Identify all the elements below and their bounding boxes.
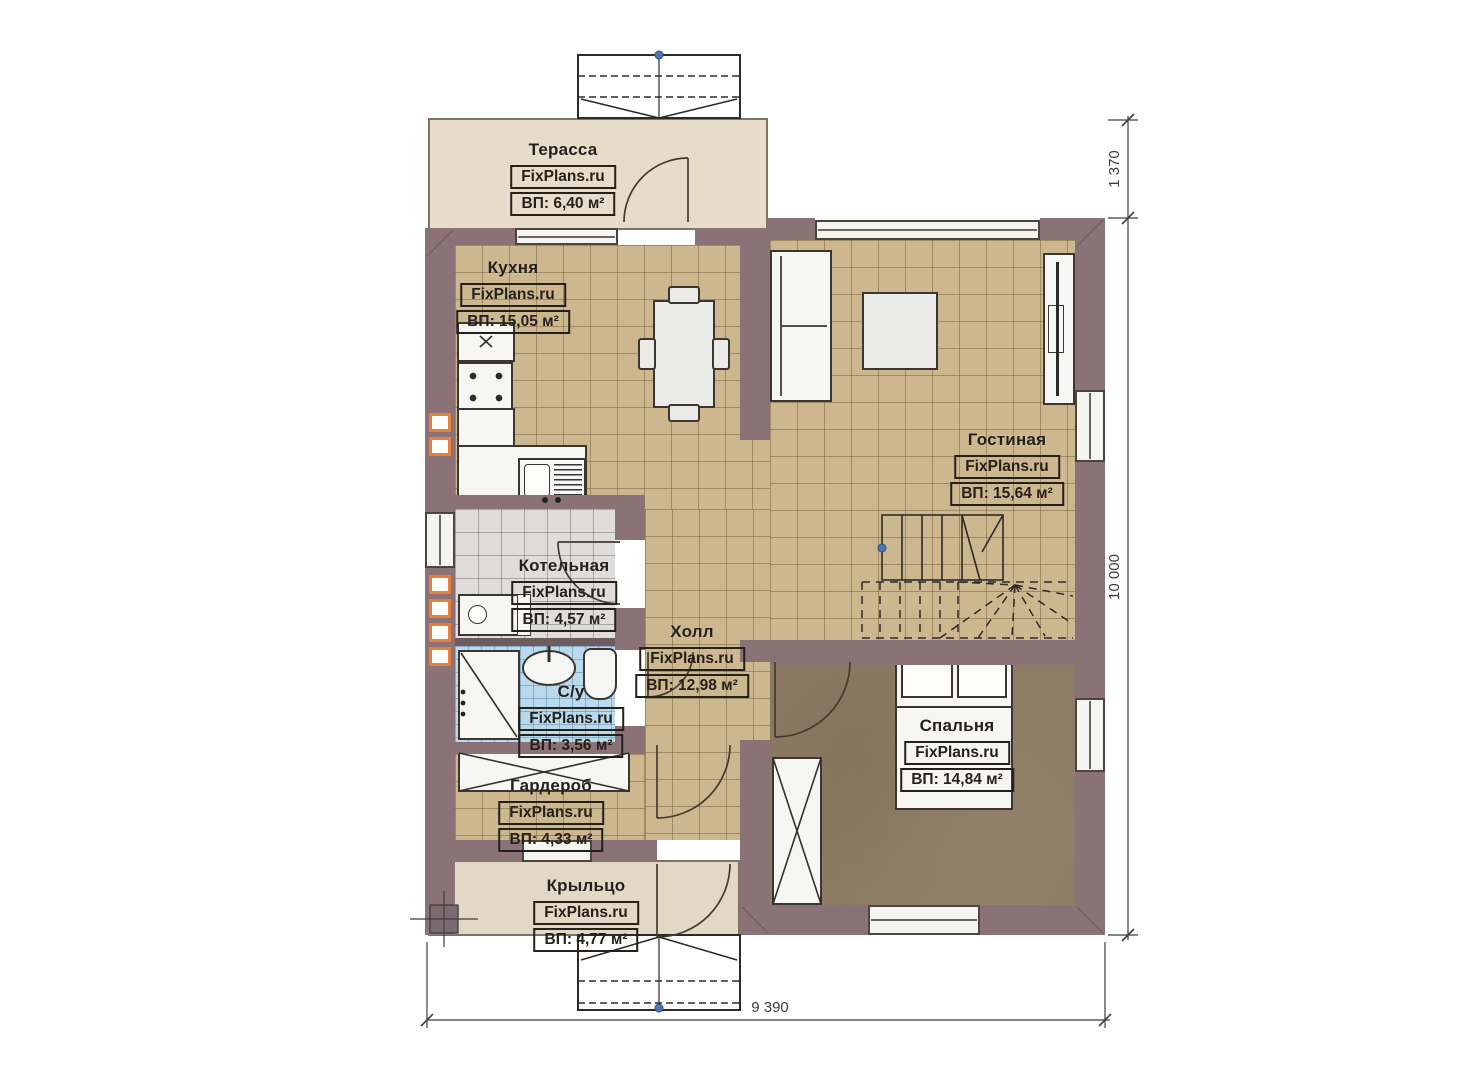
sink-drainboard	[554, 464, 582, 497]
room-label-bathroom: С/у FixPlans.ru ВП: 3,56 м²	[518, 682, 624, 758]
watermark: FixPlans.ru	[498, 801, 604, 825]
window-bedroom-right	[1075, 698, 1105, 772]
watermark: FixPlans.ru	[904, 741, 1010, 765]
room-area: ВП: 14,84 м²	[900, 768, 1014, 792]
room-area: ВП: 6,40 м²	[511, 192, 616, 216]
room-name: Котельная	[519, 556, 610, 576]
room-label-living: Гостиная FixPlans.ru ВП: 15,64 м²	[950, 430, 1064, 506]
window-boiler	[425, 512, 455, 568]
reference-point	[655, 51, 663, 59]
wall	[455, 495, 645, 509]
watermark: FixPlans.ru	[639, 647, 745, 671]
room-label-terrace: Терасса FixPlans.ru ВП: 6,40 м²	[510, 140, 616, 216]
room-name: Гостиная	[968, 430, 1046, 450]
room-area: ВП: 15,05 м²	[456, 310, 570, 334]
wall	[695, 228, 770, 245]
coffee-table	[862, 292, 938, 370]
sofa	[770, 250, 832, 402]
watermark: FixPlans.ru	[511, 581, 617, 605]
room-area: ВП: 12,98 м²	[635, 674, 749, 698]
floor-plan: 1 370 10 000 9 390 Терасса FixPlans.ru В…	[0, 0, 1473, 1080]
vent-block	[429, 437, 451, 456]
boiler-circle	[468, 605, 487, 624]
room-label-boiler: Котельная FixPlans.ru ВП: 4,57 м²	[511, 556, 617, 632]
chair	[638, 338, 656, 370]
washbasin	[522, 650, 576, 686]
watermark: FixPlans.ru	[533, 901, 639, 925]
room-name: Гардероб	[510, 776, 592, 796]
exterior-stairs-top	[578, 51, 740, 118]
window-living-right	[1075, 390, 1105, 462]
wall	[980, 905, 1105, 935]
vent-block	[429, 599, 451, 618]
dimension-right-main: 10 000	[1106, 554, 1123, 600]
chair	[668, 286, 700, 304]
room-area: ВП: 3,56 м²	[519, 734, 624, 758]
window-living-room	[815, 220, 1040, 240]
room-label-hall: Холл FixPlans.ru ВП: 12,98 м²	[635, 622, 749, 698]
wall	[770, 640, 1075, 665]
dimension-bottom: 9 390	[751, 999, 789, 1016]
wall	[740, 245, 770, 440]
vent-block	[429, 623, 451, 642]
watermark: FixPlans.ru	[954, 455, 1060, 479]
wall	[615, 509, 645, 540]
room-area: ВП: 4,57 м²	[512, 608, 617, 632]
watermark: FixPlans.ru	[510, 165, 616, 189]
vent-block	[429, 413, 451, 432]
wall	[740, 905, 868, 935]
room-name: Терасса	[529, 140, 598, 160]
room-name: С/у	[557, 682, 584, 702]
chair	[668, 404, 700, 422]
watermark: FixPlans.ru	[460, 283, 566, 307]
watermark: FixPlans.ru	[518, 707, 624, 731]
window-kitchen	[515, 228, 618, 245]
room-label-bedroom: Спальня FixPlans.ru ВП: 14,84 м²	[900, 716, 1014, 792]
room-name: Холл	[670, 622, 713, 642]
shower	[458, 650, 520, 740]
stove	[457, 362, 513, 410]
reference-point	[655, 1004, 663, 1012]
room-name: Кухня	[488, 258, 539, 278]
room-area: ВП: 4,77 м²	[534, 928, 639, 952]
dining-table	[653, 300, 715, 408]
wall	[425, 228, 515, 245]
wall	[455, 638, 615, 646]
room-area: ВП: 15,64 м²	[950, 482, 1064, 506]
room-label-wardrobe: Гардероб FixPlans.ru ВП: 4,33 м²	[498, 776, 604, 852]
sink-basin	[524, 464, 550, 497]
wall	[740, 740, 770, 905]
wardrobe-cabinet	[772, 757, 822, 905]
room-area: ВП: 4,33 м²	[499, 828, 604, 852]
wall	[1075, 218, 1105, 390]
tv	[1056, 262, 1059, 396]
room-label-kitchen: Кухня FixPlans.ru ВП: 15,05 м²	[456, 258, 570, 334]
room-name: Крыльцо	[547, 876, 626, 896]
wall	[768, 218, 815, 240]
wall	[1075, 462, 1105, 698]
vent-block	[429, 575, 451, 594]
vent-block	[429, 647, 451, 666]
wall	[425, 228, 455, 512]
room-name: Спальня	[920, 716, 995, 736]
room-label-porch: Крыльцо FixPlans.ru ВП: 4,77 м²	[533, 876, 639, 952]
chair	[712, 338, 730, 370]
dimension-right-top: 1 370	[1106, 150, 1123, 188]
window-bedroom-bottom	[868, 905, 980, 935]
